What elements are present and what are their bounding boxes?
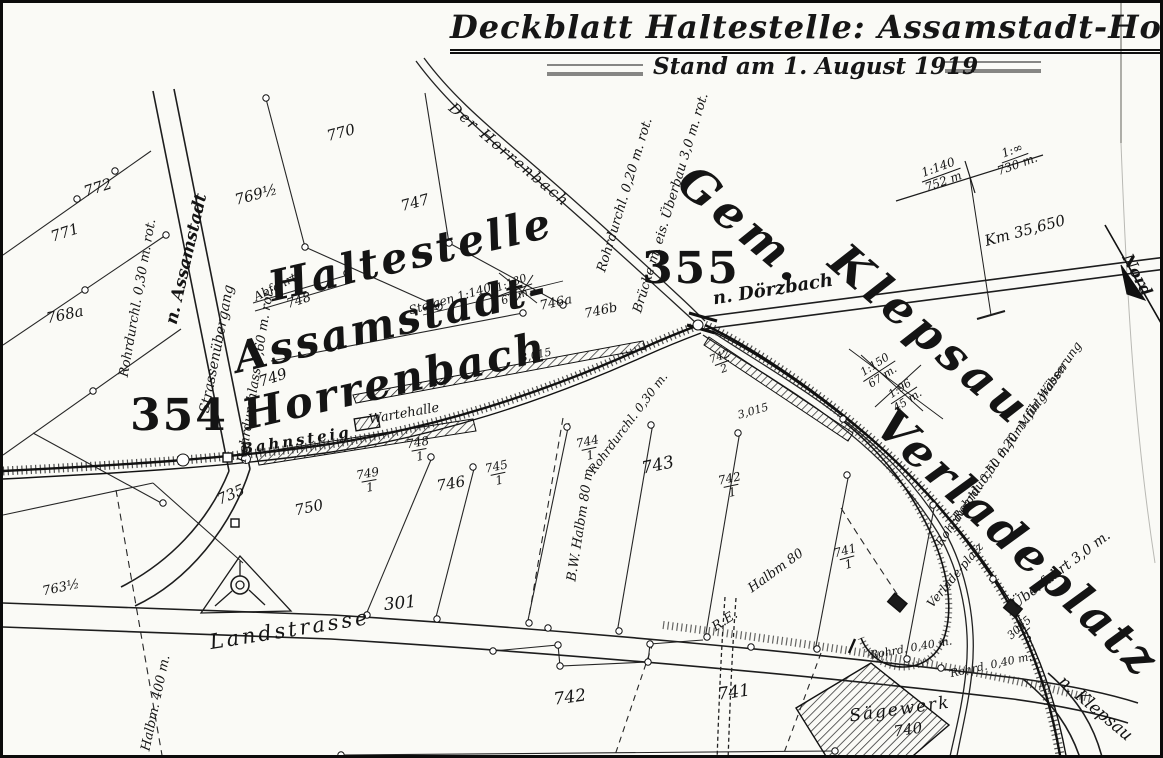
map-title: Deckblatt Haltestelle: Assamstadt-Horren…	[450, 8, 1163, 54]
flourish-left	[547, 65, 643, 76]
fraction-denominator: 1	[361, 479, 379, 496]
junction-monument	[201, 556, 291, 613]
map-sheet: Deckblatt Haltestelle: Assamstadt-Horren…	[0, 0, 1163, 758]
map-date: Stand am 1. August 1919	[653, 53, 978, 80]
crossing-symbol-1	[223, 453, 232, 462]
crossing-symbol-2	[231, 519, 239, 527]
parcel-749-1: 749 1	[355, 466, 382, 497]
parcel-748-1: 748 1	[405, 435, 432, 466]
fraction-denominator: 1	[411, 448, 429, 465]
railway-linework	[3, 313, 1093, 758]
loading-shed-1	[888, 593, 907, 612]
parcel-740: 740	[893, 721, 923, 740]
parcel-742: 742	[553, 687, 588, 708]
flourish-right	[945, 62, 1041, 73]
parcel-741: 741	[717, 682, 752, 703]
parcel-301: 301	[383, 594, 417, 614]
